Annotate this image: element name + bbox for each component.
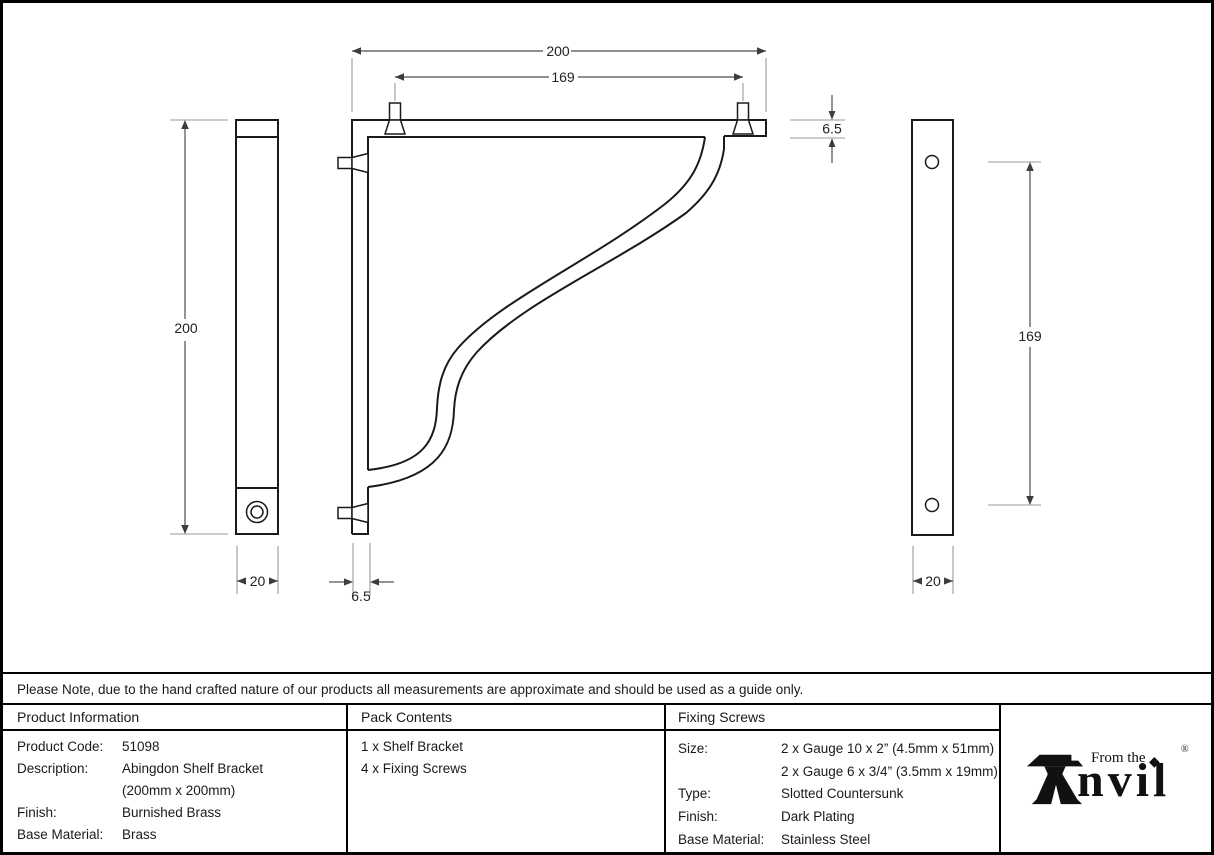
spec-sheet-page: 200 169 6.5 200 bbox=[0, 0, 1214, 855]
description-value-line2: (200mm x 200mm) bbox=[122, 783, 235, 798]
dim-top-width-label: 200 bbox=[546, 43, 570, 59]
description-label: Description: bbox=[17, 761, 88, 776]
dim-right-depth-label: 20 bbox=[925, 573, 941, 589]
screw-size-value-1: 2 x Gauge 10 x 2” (4.5mm x 51mm) bbox=[781, 741, 994, 756]
dim-upright-thickness-label: 6.5 bbox=[351, 588, 371, 604]
countersunk-hole-inner bbox=[251, 506, 263, 518]
curved-support-inner-edge bbox=[368, 137, 705, 470]
dim-left-depth-label: 20 bbox=[250, 573, 266, 589]
table-top-border bbox=[2, 703, 1212, 705]
product-code-value: 51098 bbox=[122, 739, 160, 754]
finish-label: Finish: bbox=[17, 805, 57, 820]
main-bracket-view bbox=[338, 103, 766, 534]
anvil-icon bbox=[1026, 749, 1084, 807]
dimension-right-hole-spacing: 169 bbox=[988, 162, 1042, 505]
column-divider-3 bbox=[999, 703, 1001, 852]
bracket-outer-edge bbox=[352, 120, 766, 534]
screw-material-value: Stainless Steel bbox=[781, 832, 870, 847]
left-view-plate bbox=[236, 120, 278, 534]
screw-type-value: Slotted Countersunk bbox=[781, 786, 903, 801]
dimension-left-depth: 20 bbox=[237, 546, 278, 594]
base-material-value: Brass bbox=[122, 827, 157, 842]
technical-drawing: 200 169 6.5 200 bbox=[0, 0, 1214, 672]
left-side-view bbox=[236, 120, 278, 534]
screw-finish-label: Finish: bbox=[678, 809, 718, 824]
screw-size-label: Size: bbox=[678, 741, 708, 756]
curved-support-outer-edge bbox=[368, 136, 724, 487]
dimension-arm-thickness: 6.5 bbox=[790, 95, 845, 163]
right-view-plate bbox=[912, 120, 953, 535]
dim-arm-thickness-label: 6.5 bbox=[822, 121, 842, 137]
dim-height-label: 200 bbox=[174, 320, 198, 336]
base-material-label: Base Material: bbox=[17, 827, 103, 842]
product-code-label: Product Code: bbox=[17, 739, 103, 754]
table-header-underline bbox=[2, 729, 999, 731]
pack-contents-header: Pack Contents bbox=[361, 709, 452, 725]
dim-top-holes-label: 169 bbox=[551, 69, 575, 85]
product-information-header: Product Information bbox=[17, 709, 139, 725]
screw-material-label: Base Material: bbox=[678, 832, 764, 847]
screw-type-label: Type: bbox=[678, 786, 711, 801]
dimension-top-hole-spacing: 169 bbox=[395, 69, 743, 101]
dimension-upright-thickness: 6.5 bbox=[329, 543, 394, 604]
finish-value: Burnished Brass bbox=[122, 805, 221, 820]
registered-trademark-icon: ® bbox=[1181, 744, 1189, 755]
column-divider-1 bbox=[346, 703, 348, 852]
dim-right-holes-label: 169 bbox=[1018, 328, 1042, 344]
right-view-hole-top bbox=[926, 156, 939, 169]
right-view-hole-bottom bbox=[926, 499, 939, 512]
logo-wordmark: nvil bbox=[1077, 757, 1170, 805]
disclaimer-note: Please Note, due to the hand crafted nat… bbox=[17, 682, 803, 697]
pack-item-1: 1 x Shelf Bracket bbox=[361, 739, 463, 754]
dimension-right-depth: 20 bbox=[913, 546, 953, 594]
top-screw-right bbox=[733, 103, 753, 134]
dimension-height: 200 bbox=[170, 120, 228, 534]
screw-finish-value: Dark Plating bbox=[781, 809, 855, 824]
right-side-view bbox=[912, 120, 953, 535]
top-screw-left bbox=[385, 103, 405, 134]
pack-item-2: 4 x Fixing Screws bbox=[361, 761, 467, 776]
column-divider-2 bbox=[664, 703, 666, 852]
bracket-inner-edge bbox=[368, 137, 705, 470]
note-row-top-border bbox=[2, 672, 1212, 674]
screw-size-value-2: 2 x Gauge 6 x 3/4” (3.5mm x 19mm) bbox=[781, 764, 998, 779]
fixing-screws-header: Fixing Screws bbox=[678, 709, 765, 725]
description-value: Abingdon Shelf Bracket bbox=[122, 761, 263, 776]
